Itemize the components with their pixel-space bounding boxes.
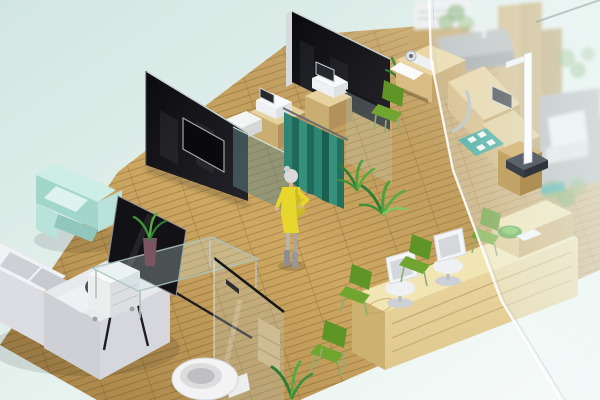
instrument-lens-center xyxy=(409,54,413,58)
person-hand xyxy=(298,205,302,209)
clinic-isometric-render xyxy=(0,0,600,400)
curtain-fold xyxy=(299,119,307,193)
curtain-fold xyxy=(322,130,329,203)
stadiometer-pole xyxy=(524,52,532,164)
person-boot xyxy=(284,250,290,266)
caster-wheel xyxy=(130,307,135,312)
person-boot xyxy=(292,252,298,268)
scene-canvas xyxy=(0,0,600,400)
caster-wheel xyxy=(93,317,98,322)
curtain-fold xyxy=(314,126,322,200)
wall-edge-face xyxy=(286,11,292,87)
person-hair-bun xyxy=(284,166,290,172)
plant-vase xyxy=(143,238,157,266)
person-hand xyxy=(275,207,279,211)
toilet-bowl xyxy=(187,368,215,384)
wall-reflection xyxy=(300,40,314,96)
chair-leg xyxy=(385,120,386,132)
person-leg xyxy=(293,233,297,255)
curtain-fold xyxy=(329,133,337,206)
curtain-fold xyxy=(307,123,314,195)
curtain-fold xyxy=(337,137,344,209)
